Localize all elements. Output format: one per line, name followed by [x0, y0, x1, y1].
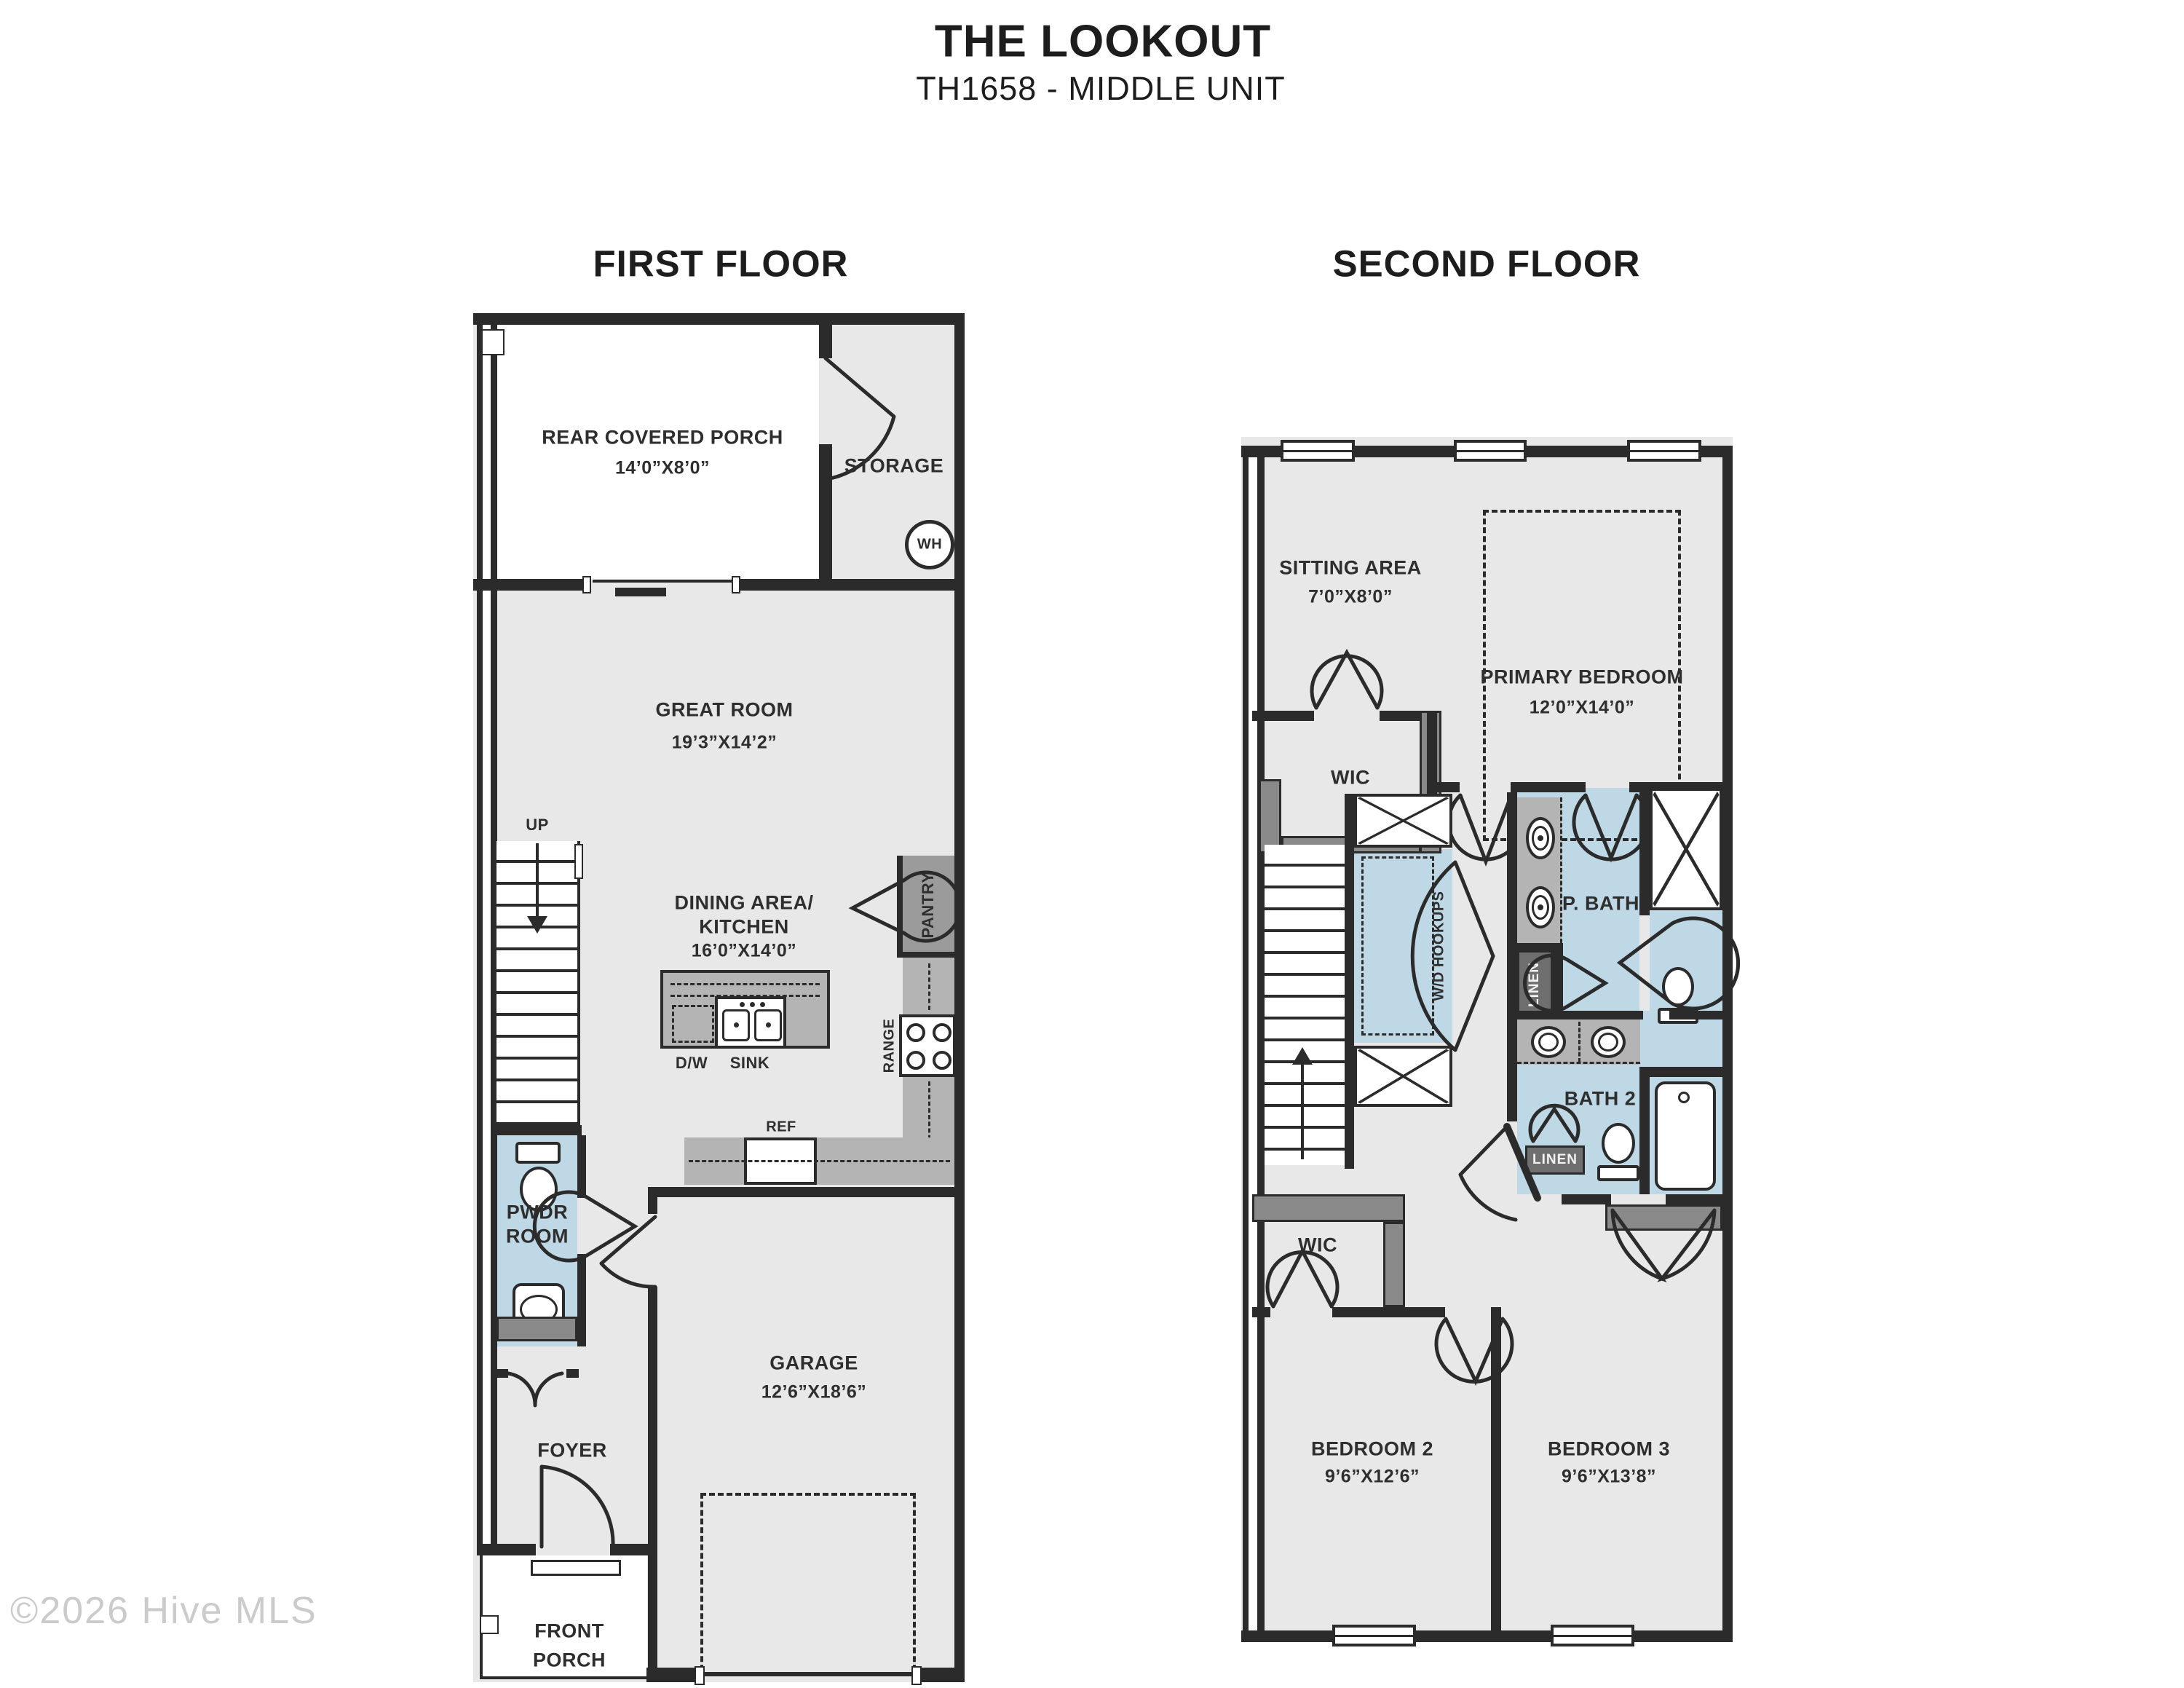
stairs-up-label: UP	[526, 816, 549, 835]
window-top-1	[1281, 440, 1355, 462]
garage-wall-left-a	[648, 1187, 657, 1214]
great-room-dims: 19’3”X14’2”	[672, 733, 778, 754]
wall-bottom	[1241, 1630, 1733, 1642]
garage-wall-top	[657, 1187, 965, 1197]
bath2-sink-1-basin	[1538, 1033, 1559, 1052]
page-subtitle: TH1658 - MIDDLE UNIT	[916, 70, 1286, 108]
bedroom2-label: BEDROOM 2	[1311, 1438, 1433, 1461]
wall-right	[1722, 446, 1733, 1642]
bedroom3-dims: 9’6”X13’8”	[1562, 1467, 1656, 1488]
powder-wall-a	[577, 1135, 586, 1198]
burner-2	[933, 1023, 951, 1042]
pantry-door	[841, 874, 908, 939]
stairs-wall-right	[1345, 794, 1354, 1169]
toilet-tank	[515, 1142, 561, 1164]
bed2-wall-b	[1332, 1307, 1445, 1317]
storage-label: STORAGE	[844, 455, 944, 478]
slider-panel	[615, 588, 666, 596]
stairs-down	[1265, 845, 1345, 1165]
party-wall-gap	[483, 325, 491, 1555]
wd-hookups-label: W/D HOOKUPS	[1431, 891, 1448, 1001]
bath2-vanity-dash-mid	[1578, 1022, 1580, 1062]
bathtub	[1655, 1081, 1716, 1191]
window-top-3	[1627, 440, 1701, 462]
wall-sitting-a	[1252, 711, 1314, 721]
slider-jamb-right	[732, 576, 740, 593]
faucet-dot-1	[740, 1002, 745, 1007]
rear-porch-floor	[483, 325, 819, 579]
stair-stringer	[577, 841, 580, 1125]
bed2-wall-a	[1252, 1307, 1270, 1317]
window-bottom-2	[1551, 1625, 1634, 1646]
bedroom3-door	[1605, 1204, 1722, 1286]
bath2-sink-2-basin	[1598, 1033, 1618, 1052]
down-arrow-head	[1292, 1047, 1313, 1065]
powder-wall-b	[577, 1254, 586, 1346]
pbath-vanity-wall	[1517, 943, 1563, 950]
wall-mid-b	[1511, 782, 1586, 792]
garage-door-jamb-left	[695, 1666, 705, 1685]
burner-4	[933, 1051, 951, 1070]
sink-label: SINK	[730, 1054, 770, 1073]
wall-right	[954, 313, 965, 1682]
wall-stairs-bottom	[493, 1125, 582, 1135]
garage-wall-left-c	[648, 1544, 657, 1682]
up-arrow-line	[536, 843, 539, 916]
water-heater-label: WH	[917, 537, 942, 553]
wic-upper-door	[1310, 645, 1383, 712]
range	[899, 1014, 956, 1077]
window-bottom-1	[1332, 1625, 1416, 1646]
garage-door-line	[700, 1672, 916, 1676]
porch-post	[480, 1615, 499, 1634]
shower	[1650, 788, 1722, 910]
bedroom-divider-wall	[1491, 1307, 1501, 1630]
front-door-sill	[531, 1560, 621, 1576]
great-room-label: GREAT ROOM	[656, 699, 794, 722]
rear-porch-dims: 14’0”X8’0”	[615, 458, 710, 479]
bath2-toilet-bowl	[1602, 1123, 1635, 1164]
counter-bottom-dash	[689, 1160, 950, 1162]
second-floor-plan: SITTING AREA 7’0”X8’0” WIC PRIMARY BEDRO…	[1241, 437, 1733, 1642]
garage-wall-left-b	[648, 1287, 657, 1555]
tub-drain	[1678, 1092, 1690, 1103]
down-arrow-line	[1301, 1065, 1304, 1159]
up-arrow-head	[527, 916, 547, 934]
garage-parking-outline	[700, 1493, 916, 1671]
wall-porch-a	[473, 579, 590, 591]
wic-lower-wall-right	[1383, 1222, 1405, 1307]
sitting-area-dims: 7’0”X8’0”	[1308, 587, 1393, 608]
faucet-dot-2	[750, 1002, 755, 1007]
party-wall-inner	[1257, 446, 1265, 1642]
basin-drain-left	[734, 1022, 739, 1028]
wic-upper-wall-left	[1259, 779, 1281, 853]
stair-newel	[574, 844, 583, 879]
dining-dims: 16’0”X14’0”	[692, 941, 797, 962]
pbath-sink-2-drain	[1538, 904, 1543, 910]
porch-corner-window	[481, 329, 505, 355]
front-door	[537, 1462, 619, 1551]
burner-1	[906, 1023, 925, 1042]
pbath-label: P. BATH	[1562, 893, 1639, 915]
island-sink-unit	[715, 996, 786, 1049]
slider-jamb-left	[582, 576, 591, 593]
bath-wall-left-a	[1507, 792, 1517, 1121]
wall-bottom-b	[916, 1668, 965, 1682]
front-porch-label-2: PORCH	[533, 1649, 606, 1672]
faucet-dot-3	[760, 1002, 765, 1007]
wall-porch-b	[737, 579, 965, 591]
burner-3	[906, 1051, 925, 1070]
closet-wall-b	[566, 1369, 579, 1378]
primary-bedroom-dims: 12’0”X14’0”	[1530, 698, 1635, 719]
second-floor-heading: SECOND FLOOR	[1333, 242, 1641, 285]
fridge-label: REF	[766, 1119, 796, 1136]
dining-label-2: KITCHEN	[699, 916, 789, 939]
understair-closet	[496, 1317, 577, 1341]
slider-track	[593, 580, 733, 583]
foyer-closet-doors	[505, 1370, 565, 1410]
island-dishwasher	[672, 1005, 714, 1043]
pbath-entry-door	[1580, 792, 1641, 865]
first-floor-plan: WH UP PWDR ROOM FOYER FRONT PORCH REAR C…	[473, 313, 965, 1682]
tub-wall-left	[1639, 1067, 1650, 1194]
pbath-vanity-dash	[1560, 797, 1562, 943]
bedroom3-label: BEDROOM 3	[1548, 1438, 1670, 1461]
island-dash-1	[670, 983, 820, 985]
tub-wall-top	[1639, 1067, 1722, 1077]
party-wall-outer	[1243, 446, 1249, 1642]
wd-bifold-doors	[1452, 858, 1497, 1054]
bedroom2-dims: 9’6”X12’6”	[1325, 1467, 1420, 1488]
bath2-entry	[1449, 1125, 1543, 1234]
bed3-wall-a	[1562, 1194, 1611, 1204]
pbath-sink-1-drain	[1538, 835, 1543, 841]
foyer-label: FOYER	[537, 1440, 607, 1462]
bath2-toilet-tank	[1597, 1165, 1639, 1181]
wic-upper-label: WIC	[1331, 767, 1370, 789]
front-porch-label-1: FRONT	[534, 1620, 604, 1643]
primary-bedroom-label: PRIMARY BEDROOM	[1480, 666, 1683, 689]
dishwasher-label: D/W	[676, 1054, 708, 1073]
bed3-wall-b	[1666, 1194, 1722, 1204]
counter-right-dash-a	[928, 963, 930, 1010]
wic-lower-wall-top	[1252, 1194, 1405, 1222]
garage-entry-door	[588, 1212, 660, 1291]
pbath-toilet-bowl	[1662, 967, 1694, 1006]
wall-top	[473, 313, 965, 325]
party-wall-gap	[1249, 457, 1257, 1630]
closet-box-top	[1354, 794, 1452, 848]
wall-bottom-a	[646, 1668, 700, 1682]
garage-door-jamb-right	[911, 1666, 922, 1685]
shower-wall-left	[1639, 788, 1650, 915]
wic-lower-door	[1269, 1244, 1336, 1311]
bath2-divider-a	[1517, 1011, 1643, 1019]
sitting-area-label: SITTING AREA	[1279, 557, 1422, 580]
pantry-label: PANTRY	[919, 872, 938, 939]
first-floor-heading: FIRST FLOOR	[593, 242, 849, 285]
rear-porch-label: REAR COVERED PORCH	[542, 427, 783, 449]
window-top-2	[1454, 440, 1527, 462]
page-title: THE LOOKOUT	[935, 16, 1271, 68]
wall-foyer-a	[477, 1544, 536, 1555]
basin-drain-right	[766, 1022, 771, 1028]
party-wall-outer	[477, 313, 483, 1555]
wall-above-closet	[1427, 711, 1437, 794]
closet-box-bottom	[1354, 1046, 1452, 1107]
bath2-divider-b	[1669, 1011, 1722, 1019]
garage-label: GARAGE	[769, 1352, 858, 1375]
dining-label-1: DINING AREA/	[674, 892, 813, 915]
watermark: ©2026 Hive MLS	[10, 1589, 317, 1633]
garage-dims: 12’6”X18’6”	[761, 1382, 867, 1403]
range-label: RANGE	[882, 1019, 898, 1073]
